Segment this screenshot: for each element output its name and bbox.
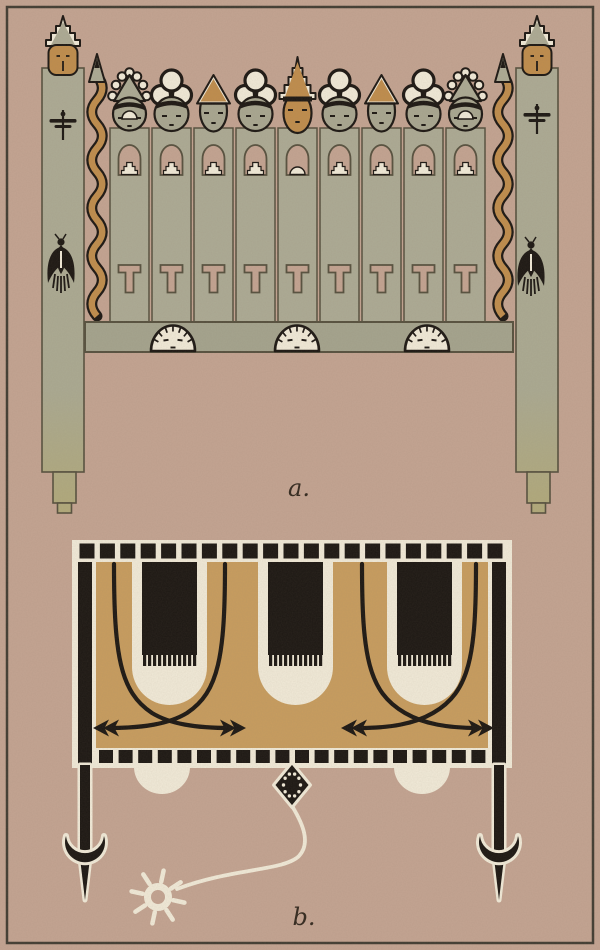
rain-cloud-motifs	[132, 562, 462, 705]
border-square	[158, 750, 172, 763]
border-square	[256, 750, 270, 763]
rain-cloud-motif-icon	[132, 562, 207, 705]
altar-slat	[446, 128, 485, 322]
border-square	[345, 544, 360, 559]
altar-post-left	[42, 16, 84, 513]
sun-ray	[152, 912, 154, 923]
altar-post-right	[516, 16, 558, 513]
altar-slat	[152, 128, 191, 322]
altar-slat	[236, 128, 275, 322]
figure-b-label: b.	[293, 903, 316, 931]
altar-slat	[110, 128, 149, 322]
rain-cloud-motif-icon	[387, 562, 462, 705]
border-square	[447, 544, 462, 559]
altar-slat	[320, 128, 359, 322]
border-square	[100, 544, 115, 559]
border-square	[413, 750, 427, 763]
figure-a-label: a.	[288, 474, 310, 502]
slat-row	[110, 128, 485, 322]
panel-edge-bar-right	[492, 562, 506, 768]
border-square	[315, 750, 329, 763]
altar-slat	[278, 128, 317, 322]
rain-cloud-motif-icon	[258, 562, 333, 705]
border-square	[365, 544, 380, 559]
border-square	[452, 750, 466, 763]
border-square	[467, 544, 482, 559]
border-square	[141, 544, 156, 559]
border-square	[393, 750, 407, 763]
top-border-squares	[80, 544, 503, 559]
border-square	[161, 544, 176, 559]
border-square	[138, 750, 152, 763]
border-square	[304, 544, 319, 559]
altar-slat	[362, 128, 401, 322]
border-square	[324, 544, 339, 559]
sun-ray	[173, 900, 184, 902]
sun-ray	[132, 891, 143, 893]
altar-slat	[194, 128, 233, 322]
border-square	[263, 544, 278, 559]
border-square	[354, 750, 368, 763]
border-square	[99, 750, 113, 763]
border-square	[373, 750, 387, 763]
lithograph-plate: a.	[0, 0, 600, 950]
border-square	[236, 750, 250, 763]
border-square	[197, 750, 211, 763]
border-square	[406, 544, 421, 559]
border-square	[120, 544, 135, 559]
border-square	[488, 544, 503, 559]
border-square	[217, 750, 231, 763]
border-square	[222, 544, 237, 559]
plate-illustration: a.	[0, 0, 600, 950]
border-square	[426, 544, 441, 559]
border-square	[182, 544, 197, 559]
border-square	[295, 750, 309, 763]
border-square	[334, 750, 348, 763]
altar-slat	[404, 128, 443, 322]
sun-ray	[161, 871, 163, 882]
border-square	[386, 544, 401, 559]
border-square	[275, 750, 289, 763]
border-square	[284, 544, 299, 559]
border-square	[471, 750, 485, 763]
border-square	[243, 544, 258, 559]
panel-edge-bar-left	[78, 562, 92, 768]
border-square	[119, 750, 133, 763]
border-square	[202, 544, 217, 559]
border-square	[177, 750, 191, 763]
border-square	[80, 544, 95, 559]
border-square	[432, 750, 446, 763]
